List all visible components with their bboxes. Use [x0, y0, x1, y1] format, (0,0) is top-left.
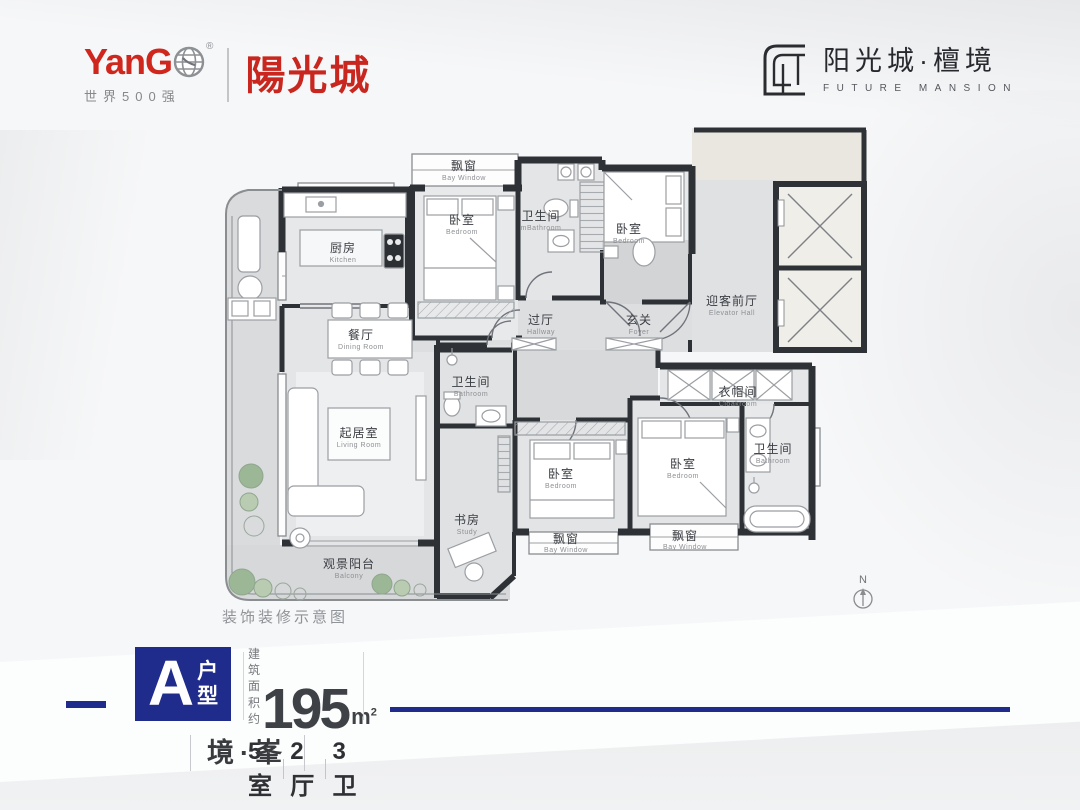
room-label-en: Foyer	[629, 329, 650, 336]
room-label-zh: 玄关	[626, 312, 652, 327]
room-label-en: Bathroom	[454, 391, 488, 398]
accent-line-right	[390, 707, 1010, 712]
area-prefix: 建筑 面积约	[248, 646, 260, 735]
unit-label-line1: 户	[197, 659, 218, 684]
north-label: N	[859, 574, 867, 586]
tagline-block: 境·峯	[190, 735, 305, 771]
room-label-zh: 卫生间	[753, 442, 792, 456]
room-label-zh: 卧室	[670, 456, 696, 471]
room-label-zh: 飘窗	[451, 159, 477, 173]
room-label-en: Dining Room	[338, 344, 384, 351]
room-label-zh: 卧室	[548, 466, 574, 481]
room-label-zh: 书房	[454, 512, 480, 527]
room-label-zh: 卫生间	[451, 375, 490, 389]
room-label-en: Kitchen	[330, 257, 357, 264]
area-prefix-line1: 建筑	[248, 646, 260, 678]
room-label-en: mBathroom	[521, 225, 562, 232]
layout-separator	[325, 759, 326, 779]
area-block: 建筑 面积约 195 m2 5室 2厅 3卫	[248, 646, 360, 801]
unit-type-badge: A 户 型	[135, 647, 231, 721]
yango-wordmark: YanG ®	[84, 44, 213, 80]
unit-letter: A	[148, 655, 194, 713]
brand-logo: 阳光城·檀境 FUTURE MANSION	[761, 42, 1018, 98]
room-label-zh: 衣帽间	[718, 384, 757, 399]
logo-divider	[227, 48, 229, 102]
area-prefix-line2: 面积约	[248, 678, 260, 727]
room-label-en: Cloakroom	[719, 401, 757, 408]
room-label-en: Elevator Hall	[709, 310, 755, 317]
room-label-zh: 起居室	[339, 425, 378, 440]
room-label-zh: 卧室	[449, 212, 475, 227]
yango-calligraphy: 陽光城	[245, 54, 371, 96]
room-label-zh: 观景阳台	[323, 556, 375, 571]
room-label-en: Balcony	[335, 573, 363, 580]
room-label-zh: 飘窗	[672, 529, 698, 543]
room-label-en: Bay Window	[544, 547, 588, 554]
room-label-zh: 过厅	[528, 313, 554, 327]
registered-mark: ®	[206, 42, 213, 52]
room-label-en: Bedroom	[545, 483, 577, 490]
room-label-en: Bay Window	[442, 175, 486, 182]
room-label-zh: 餐厅	[348, 327, 374, 342]
room-label-en: Bedroom	[446, 229, 478, 236]
unit-label-line2: 型	[197, 684, 218, 709]
room-label-en: Bedroom	[613, 238, 645, 245]
plan-caption: 装饰装修示意图	[222, 606, 348, 627]
area-row: 建筑 面积约 195 m2	[248, 646, 360, 735]
room-label-en: Bay Window	[663, 544, 707, 551]
tagline-bar-left	[190, 735, 191, 771]
room-label-en: Study	[457, 529, 477, 536]
area-unit-exponent: 2	[371, 707, 377, 719]
yango-subtitle: 世界500强	[84, 86, 213, 105]
room-label-zh: 卧室	[616, 221, 642, 236]
yango-wordmark-text: YanG	[84, 44, 172, 80]
room-label-en: Living Room	[337, 442, 381, 449]
brand-text-block: 阳光城·檀境 FUTURE MANSION	[823, 46, 1018, 93]
room-label-en: Bathroom	[756, 458, 790, 465]
tagline-text: 境·峯	[207, 735, 288, 771]
brand-subtitle: FUTURE MANSION	[823, 83, 1018, 94]
page: YanG ® 世界500强 陽光城 阳光城·	[0, 0, 1080, 810]
north-indicator: N	[854, 574, 872, 608]
area-value: 195	[262, 683, 348, 735]
unit-label: 户 型	[197, 659, 218, 709]
room-label-zh: 迎客前厅	[706, 293, 758, 308]
accent-dash-left	[66, 701, 106, 708]
layout-bathrooms: 3卫	[333, 738, 361, 801]
brand-monogram-icon	[761, 42, 809, 98]
info-divider-left	[243, 652, 244, 720]
yango-logo: YanG ® 世界500强 陽光城	[84, 44, 371, 105]
room-label-zh: 飘窗	[553, 532, 579, 546]
info-divider-right	[363, 652, 364, 720]
room-label-en: Hallway	[527, 329, 555, 336]
brand-name: 阳光城·檀境	[823, 46, 1018, 77]
public-zone	[692, 128, 866, 352]
room-label-zh: 厨房	[330, 240, 356, 255]
room-label-en: Bedroom	[667, 473, 699, 480]
tagline-bar-right	[304, 735, 305, 771]
globe-icon	[173, 46, 205, 78]
room-label-zh: 卫生间	[521, 209, 560, 223]
yango-logo-block: YanG ® 世界500强	[84, 44, 213, 105]
